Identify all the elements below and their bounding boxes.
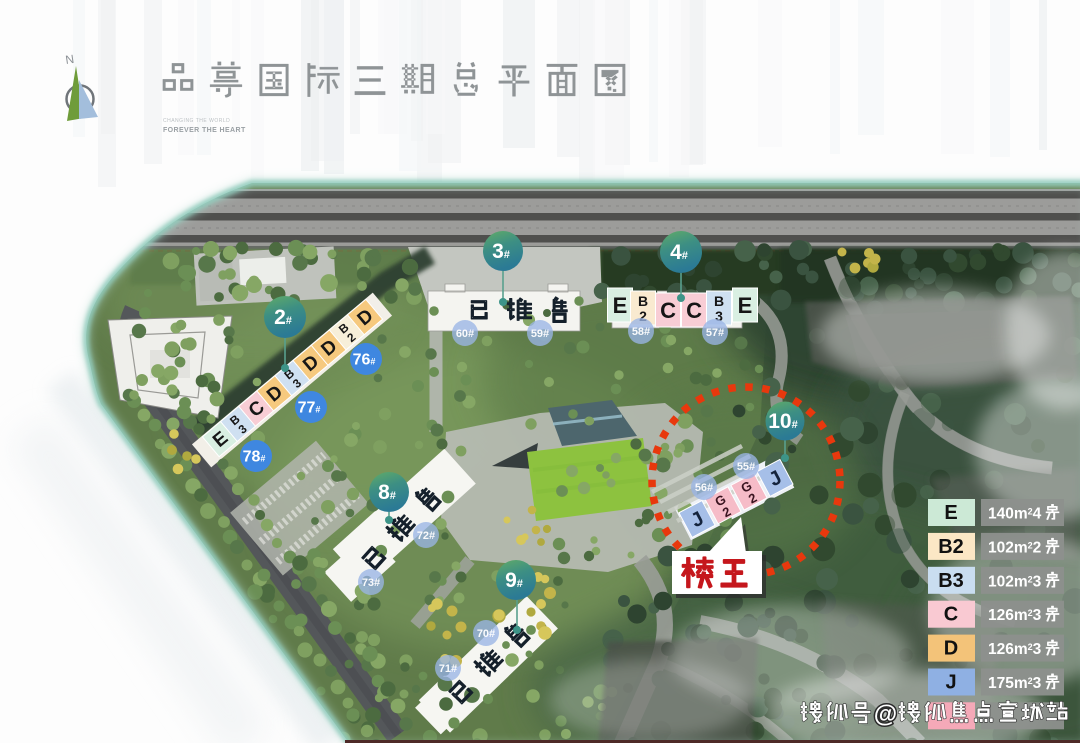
svg-text:58#: 58# [632, 326, 650, 338]
svg-text:72#: 72# [417, 530, 435, 542]
svg-text:J: J [945, 672, 956, 694]
svg-text:126m23: 126m23 [988, 641, 1042, 658]
svg-text:FOREVER THE HEART: FOREVER THE HEART [163, 127, 246, 134]
svg-text:C: C [944, 604, 958, 626]
svg-text:C: C [686, 298, 702, 323]
svg-text:71#: 71# [439, 663, 457, 675]
svg-text:B: B [714, 293, 724, 309]
svg-text:55#: 55# [737, 461, 755, 473]
svg-text:@: @ [874, 701, 897, 728]
svg-text:140m24: 140m24 [988, 506, 1042, 523]
svg-text:70#: 70# [477, 628, 495, 640]
svg-text:CHANGING THE WORLD: CHANGING THE WORLD [163, 118, 230, 124]
svg-text:D: D [944, 638, 958, 660]
svg-text:57#: 57# [706, 327, 724, 339]
svg-text:102m23: 102m23 [988, 573, 1042, 590]
svg-text:B3: B3 [938, 570, 964, 592]
svg-text:E: E [944, 502, 957, 524]
svg-text:C: C [660, 298, 676, 323]
svg-text:E: E [738, 293, 753, 318]
svg-text:56#: 56# [695, 482, 713, 494]
svg-text:102m22: 102m22 [988, 539, 1041, 556]
svg-text:B2: B2 [938, 536, 964, 558]
svg-text:E: E [613, 293, 628, 318]
svg-text:175m23: 175m23 [988, 675, 1042, 692]
svg-text:73#: 73# [362, 577, 380, 589]
svg-text:126m23: 126m23 [988, 607, 1042, 624]
svg-text:B: B [638, 293, 648, 309]
svg-text:60#: 60# [456, 328, 474, 340]
svg-text:59#: 59# [531, 328, 549, 340]
